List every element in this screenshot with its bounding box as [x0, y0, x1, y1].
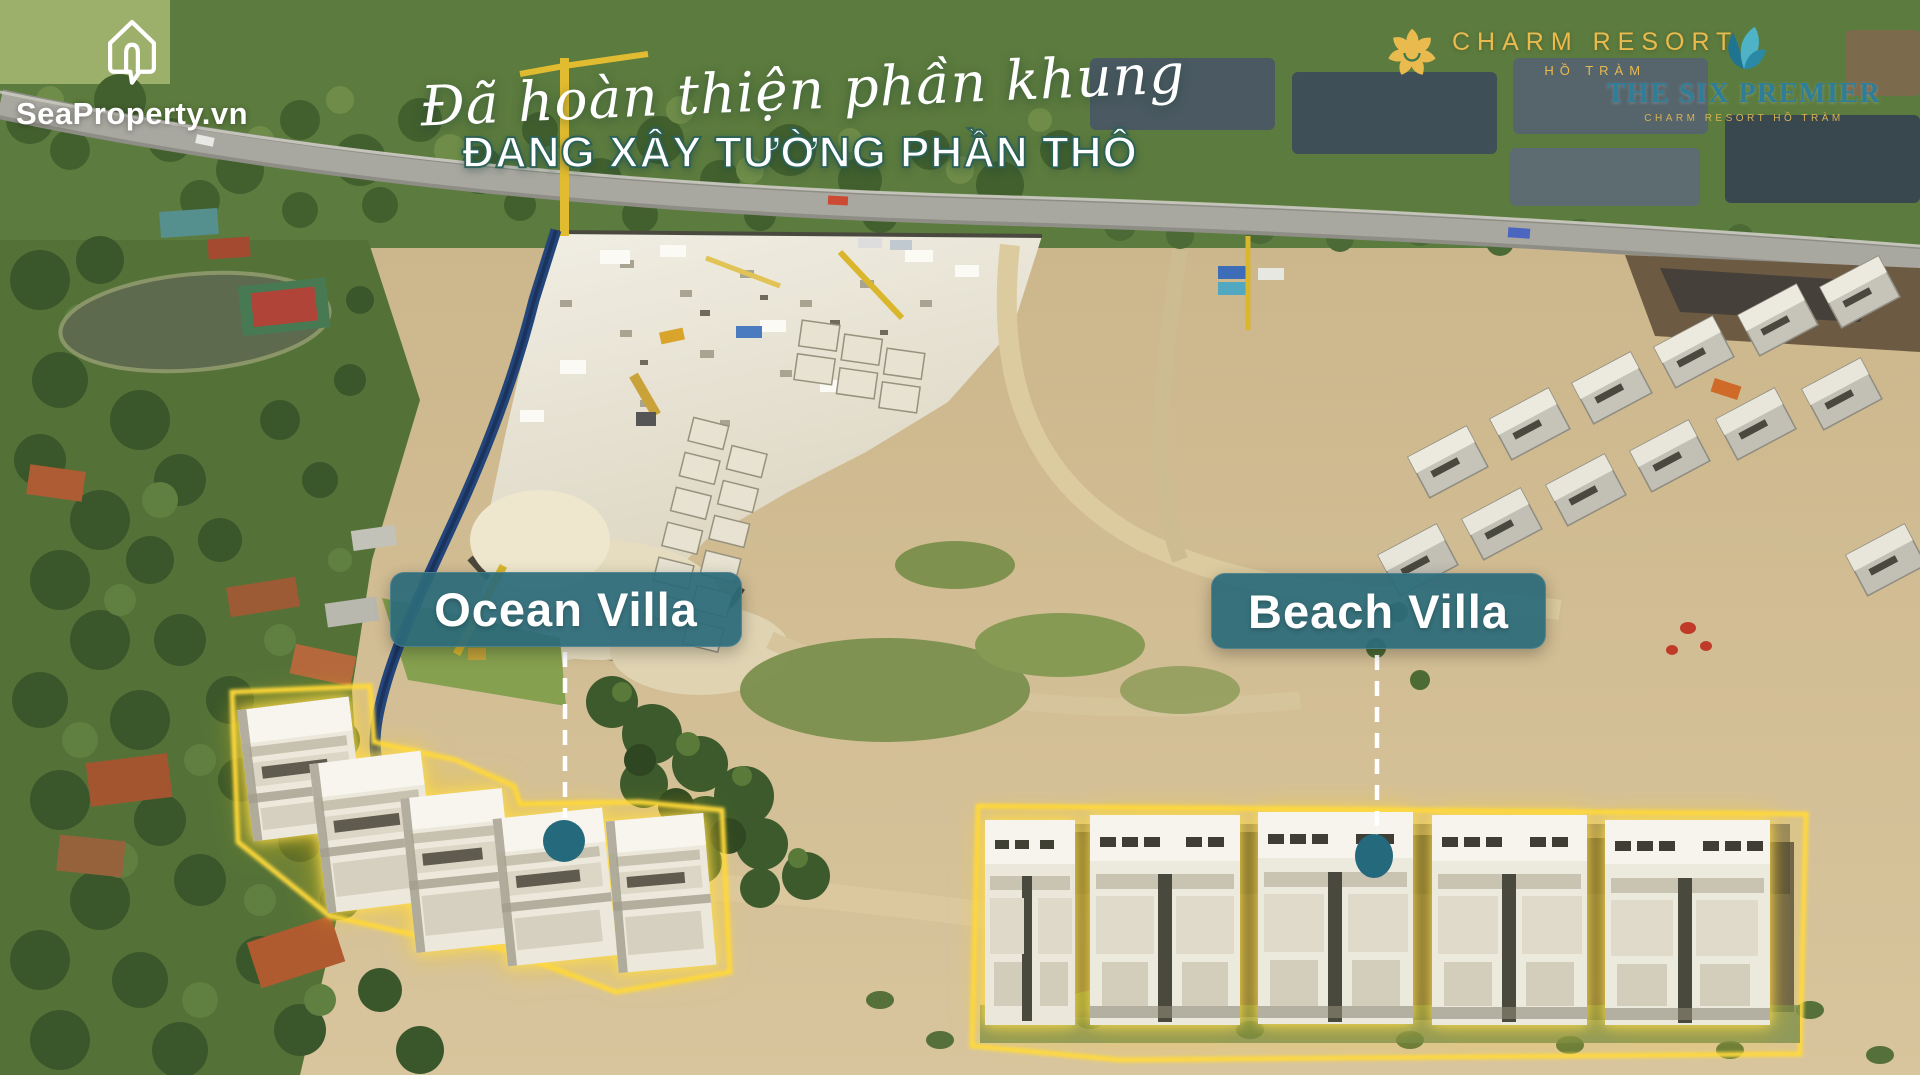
six-premier-logo: THE SIX PREMIER CHARM RESORT HỒ TRÀM [1608, 20, 1880, 124]
beach-villa-marker-dot [1355, 834, 1393, 878]
beach-villa-label-text: Beach Villa [1248, 584, 1509, 639]
tennis-court [238, 277, 331, 336]
screenshot: SeaProperty.vn Đã hoàn thiện phần khung … [0, 0, 1920, 1075]
headline-bold-line: ĐANG XÂY TƯỜNG PHẦN THÔ [420, 128, 1180, 178]
ocean-villa-label: Ocean Villa [390, 572, 742, 647]
ocean-villa-marker-dot [543, 820, 585, 862]
watermark-text: SeaProperty.vn [16, 96, 248, 132]
pinwheel-flower-icon [1384, 24, 1440, 82]
headline: Đã hoàn thiện phần khung ĐANG XÂY TƯỜNG … [420, 58, 1180, 178]
six-premier-subtitle: CHARM RESORT HỒ TRÀM [1644, 113, 1843, 124]
ocean-villa-label-text: Ocean Villa [434, 582, 698, 637]
six-premier-name: THE SIX PREMIER [1607, 78, 1882, 110]
nautilus-shell-icon [1718, 20, 1770, 74]
house-icon [100, 12, 164, 86]
beach-villa-label: Beach Villa [1211, 573, 1546, 649]
seaproperty-watermark: SeaProperty.vn [22, 12, 242, 132]
